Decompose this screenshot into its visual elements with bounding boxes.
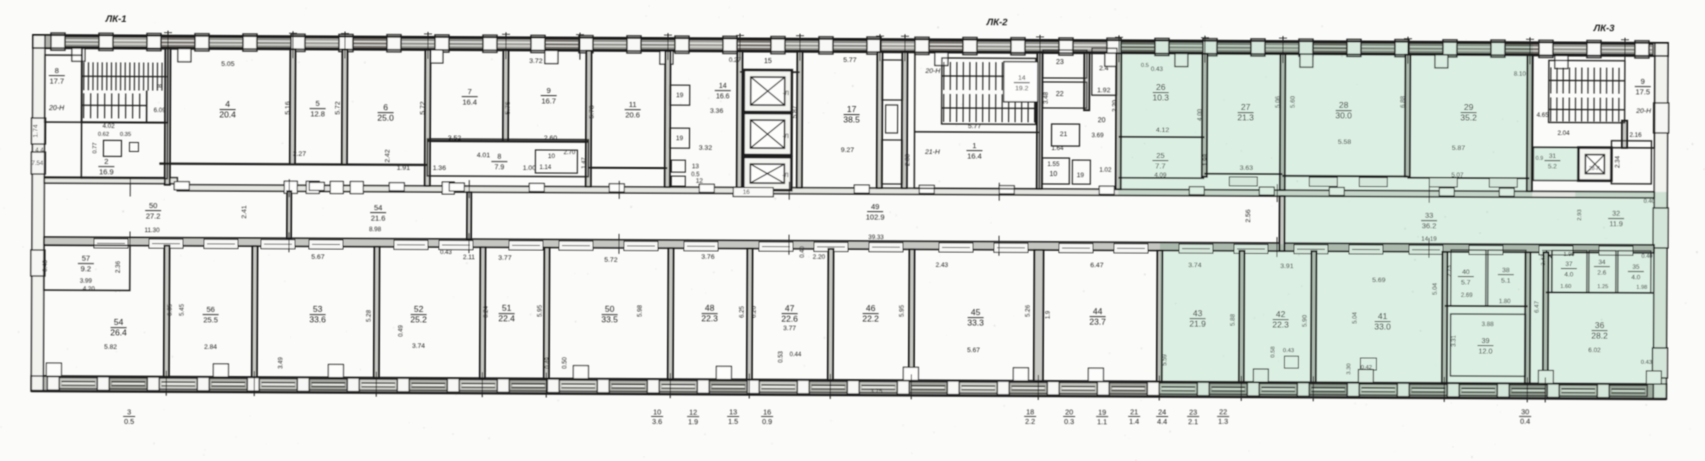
svg-text:9.27: 9.27 bbox=[841, 147, 854, 154]
svg-text:33.5: 33.5 bbox=[601, 314, 618, 324]
svg-text:5.67: 5.67 bbox=[311, 254, 324, 261]
svg-text:20-Н: 20-Н bbox=[48, 105, 65, 112]
svg-text:5.67: 5.67 bbox=[967, 347, 980, 354]
svg-text:27.2: 27.2 bbox=[146, 211, 161, 220]
svg-text:23: 23 bbox=[1189, 407, 1197, 416]
svg-text:4.4: 4.4 bbox=[1157, 417, 1167, 426]
svg-text:7.9: 7.9 bbox=[494, 164, 504, 171]
svg-text:13: 13 bbox=[729, 408, 737, 417]
svg-text:5.95: 5.95 bbox=[537, 304, 544, 317]
svg-text:5.76: 5.76 bbox=[505, 101, 512, 114]
svg-text:3.69: 3.69 bbox=[1091, 132, 1104, 139]
svg-text:0.53: 0.53 bbox=[778, 350, 784, 362]
svg-text:9: 9 bbox=[1641, 77, 1645, 86]
svg-text:7.54: 7.54 bbox=[32, 161, 44, 167]
svg-text:14: 14 bbox=[1018, 75, 1026, 82]
svg-text:1.74: 1.74 bbox=[33, 124, 40, 137]
svg-text:0.3: 0.3 bbox=[1064, 417, 1074, 426]
svg-text:5.05: 5.05 bbox=[221, 61, 234, 68]
svg-text:3.32: 3.32 bbox=[699, 145, 712, 152]
svg-text:25.2: 25.2 bbox=[410, 314, 427, 324]
svg-text:16.4: 16.4 bbox=[462, 97, 477, 106]
svg-text:5.77: 5.77 bbox=[968, 123, 981, 130]
svg-text:33.3: 33.3 bbox=[967, 317, 984, 327]
svg-text:10: 10 bbox=[653, 407, 661, 416]
svg-text:3.6: 3.6 bbox=[652, 417, 662, 426]
svg-text:25.0: 25.0 bbox=[377, 112, 394, 122]
svg-text:47: 47 bbox=[785, 303, 795, 313]
svg-text:2.11: 2.11 bbox=[463, 254, 475, 261]
svg-text:0.49: 0.49 bbox=[399, 324, 405, 336]
svg-text:51: 51 bbox=[502, 303, 512, 313]
svg-text:4.20: 4.20 bbox=[83, 286, 96, 293]
svg-text:16.6: 16.6 bbox=[716, 93, 730, 100]
svg-text:0.77: 0.77 bbox=[92, 143, 98, 154]
svg-text:3.74: 3.74 bbox=[412, 343, 425, 350]
svg-text:5.82: 5.82 bbox=[104, 344, 117, 351]
svg-text:5.87: 5.87 bbox=[792, 105, 799, 118]
svg-text:5.45: 5.45 bbox=[179, 303, 186, 316]
svg-text:4.01: 4.01 bbox=[477, 152, 490, 159]
svg-text:50: 50 bbox=[149, 201, 157, 210]
svg-text:21: 21 bbox=[1060, 131, 1068, 138]
svg-text:4: 4 bbox=[225, 99, 230, 109]
svg-text:25.5: 25.5 bbox=[203, 315, 218, 324]
svg-text:44: 44 bbox=[1093, 306, 1103, 316]
svg-text:4.4: 4.4 bbox=[35, 148, 44, 154]
svg-text:56: 56 bbox=[206, 305, 214, 314]
svg-text:21: 21 bbox=[1130, 407, 1138, 416]
svg-text:1.9: 1.9 bbox=[688, 417, 698, 426]
svg-text:2.70: 2.70 bbox=[564, 150, 576, 156]
svg-text:2: 2 bbox=[104, 157, 108, 166]
svg-text:2.34: 2.34 bbox=[1614, 155, 1621, 168]
svg-text:1.91: 1.91 bbox=[397, 165, 410, 172]
svg-text:24: 24 bbox=[1158, 408, 1166, 417]
svg-text:54: 54 bbox=[114, 317, 124, 327]
svg-text:2.20: 2.20 bbox=[1112, 99, 1119, 112]
svg-text:28-Л: 28-Л bbox=[1589, 166, 1600, 172]
svg-text:2.04: 2.04 bbox=[1557, 130, 1570, 137]
svg-text:23: 23 bbox=[1056, 59, 1064, 66]
svg-text:6.25: 6.25 bbox=[739, 305, 746, 318]
svg-text:2.93: 2.93 bbox=[1577, 209, 1583, 220]
svg-text:20.6: 20.6 bbox=[625, 110, 640, 119]
svg-text:11: 11 bbox=[629, 100, 637, 109]
svg-text:12: 12 bbox=[696, 178, 704, 185]
svg-text:1.9: 1.9 bbox=[1046, 310, 1052, 319]
svg-text:1.5: 1.5 bbox=[728, 417, 738, 426]
svg-text:0.43: 0.43 bbox=[440, 250, 452, 256]
svg-text:0.49: 0.49 bbox=[545, 356, 551, 368]
svg-text:3.77: 3.77 bbox=[498, 255, 511, 262]
svg-text:8: 8 bbox=[55, 66, 59, 75]
svg-text:8.98: 8.98 bbox=[369, 226, 382, 233]
svg-text:16.4: 16.4 bbox=[967, 151, 982, 160]
svg-text:3.77: 3.77 bbox=[783, 325, 796, 332]
svg-text:50: 50 bbox=[605, 304, 615, 314]
svg-text:0.62: 0.62 bbox=[98, 132, 109, 138]
svg-text:6.05: 6.05 bbox=[167, 303, 174, 316]
svg-text:1.3: 1.3 bbox=[1218, 417, 1228, 426]
svg-text:2.41: 2.41 bbox=[241, 205, 248, 218]
svg-text:19: 19 bbox=[676, 135, 684, 142]
svg-text:11.9: 11.9 bbox=[1609, 219, 1623, 228]
svg-text:20-Н: 20-Н bbox=[1635, 108, 1651, 115]
svg-text:1.92: 1.92 bbox=[1097, 87, 1110, 94]
svg-text:1.1: 1.1 bbox=[1097, 417, 1107, 426]
svg-text:5.95: 5.95 bbox=[899, 304, 906, 317]
svg-text:12: 12 bbox=[689, 408, 697, 417]
svg-text:2.56: 2.56 bbox=[1245, 209, 1252, 222]
svg-text:22.2: 22.2 bbox=[862, 313, 879, 323]
svg-text:17: 17 bbox=[847, 104, 857, 114]
svg-text:7: 7 bbox=[468, 87, 472, 96]
svg-text:5.72: 5.72 bbox=[604, 257, 617, 264]
svg-text:13: 13 bbox=[692, 163, 700, 170]
svg-text:2.2: 2.2 bbox=[1025, 417, 1035, 426]
svg-text:5.28: 5.28 bbox=[366, 309, 373, 322]
svg-text:0.44: 0.44 bbox=[790, 352, 802, 358]
svg-text:10: 10 bbox=[1049, 171, 1057, 178]
svg-text:1: 1 bbox=[972, 141, 976, 150]
svg-text:0.35: 0.35 bbox=[120, 132, 131, 138]
svg-text:5.26: 5.26 bbox=[1025, 304, 1032, 317]
svg-text:ЛК-2: ЛК-2 bbox=[986, 17, 1009, 28]
svg-text:0.50: 0.50 bbox=[562, 356, 568, 368]
svg-text:17.5: 17.5 bbox=[1635, 87, 1650, 96]
svg-text:2.60: 2.60 bbox=[544, 135, 557, 142]
svg-text:6.24: 6.24 bbox=[483, 305, 490, 318]
svg-text:6.09: 6.09 bbox=[154, 107, 167, 114]
svg-text:20: 20 bbox=[1098, 117, 1106, 124]
svg-text:1.00: 1.00 bbox=[523, 165, 536, 172]
svg-text:2.88: 2.88 bbox=[904, 153, 911, 166]
svg-text:5.98: 5.98 bbox=[637, 304, 644, 317]
svg-text:22.4: 22.4 bbox=[498, 313, 515, 323]
svg-text:16.7: 16.7 bbox=[541, 96, 556, 105]
svg-text:-Л: -Л bbox=[782, 133, 788, 140]
svg-text:0.40: 0.40 bbox=[1644, 199, 1655, 205]
svg-text:2.36: 2.36 bbox=[115, 260, 122, 273]
svg-text:102.9: 102.9 bbox=[866, 212, 885, 221]
svg-text:22.6: 22.6 bbox=[781, 313, 798, 323]
svg-text:16.9: 16.9 bbox=[99, 167, 114, 176]
svg-text:46: 46 bbox=[866, 303, 876, 313]
svg-text:0.9: 0.9 bbox=[762, 417, 772, 426]
svg-text:5.77: 5.77 bbox=[843, 57, 856, 64]
svg-text:1.55: 1.55 bbox=[1047, 161, 1060, 168]
svg-text:8: 8 bbox=[157, 84, 164, 88]
svg-text:2.20: 2.20 bbox=[813, 254, 826, 261]
svg-text:19.2: 19.2 bbox=[1015, 86, 1028, 93]
svg-text:6.47: 6.47 bbox=[1090, 262, 1103, 269]
svg-text:57: 57 bbox=[82, 254, 90, 263]
svg-text:10: 10 bbox=[548, 153, 556, 160]
svg-text:2.43: 2.43 bbox=[936, 262, 949, 269]
svg-text:21.6: 21.6 bbox=[371, 213, 386, 222]
svg-text:26.4: 26.4 bbox=[110, 327, 127, 337]
svg-text:6: 6 bbox=[383, 102, 388, 112]
svg-text:12.8: 12.8 bbox=[310, 109, 325, 118]
svg-text:0.48: 0.48 bbox=[43, 259, 49, 271]
svg-text:30: 30 bbox=[1521, 407, 1529, 416]
svg-text:3.52: 3.52 bbox=[448, 135, 461, 142]
svg-text:54: 54 bbox=[374, 203, 382, 212]
svg-text:2.27: 2.27 bbox=[293, 151, 306, 158]
svg-text:32: 32 bbox=[1612, 209, 1620, 218]
svg-text:3: 3 bbox=[127, 407, 131, 416]
svg-text:49: 49 bbox=[871, 202, 879, 211]
svg-text:ЛК-3: ЛК-3 bbox=[1593, 23, 1616, 34]
svg-text:17.7: 17.7 bbox=[49, 76, 64, 85]
svg-text:53: 53 bbox=[313, 304, 323, 314]
svg-text:6.20: 6.20 bbox=[751, 305, 758, 318]
svg-text:3.49: 3.49 bbox=[278, 356, 284, 368]
svg-text:3.72: 3.72 bbox=[529, 58, 542, 65]
svg-text:22: 22 bbox=[1219, 408, 1227, 417]
svg-text:4.65: 4.65 bbox=[1537, 112, 1550, 119]
svg-text:2.84: 2.84 bbox=[204, 344, 217, 351]
svg-text:4.02: 4.02 bbox=[103, 123, 116, 130]
svg-text:19: 19 bbox=[1077, 172, 1085, 179]
svg-text:16: 16 bbox=[763, 407, 771, 416]
svg-text:39.33: 39.33 bbox=[868, 234, 884, 241]
svg-text:8: 8 bbox=[497, 154, 501, 161]
svg-text:2.1: 2.1 bbox=[1188, 417, 1198, 426]
svg-text:3.48: 3.48 bbox=[1043, 91, 1050, 104]
svg-text:2.16: 2.16 bbox=[1629, 132, 1642, 139]
svg-text:5.72: 5.72 bbox=[420, 101, 427, 114]
svg-text:0.5: 0.5 bbox=[124, 417, 134, 426]
svg-text:0.4: 0.4 bbox=[1520, 417, 1530, 426]
svg-text:9: 9 bbox=[547, 86, 551, 95]
svg-text:ЛК-1: ЛК-1 bbox=[105, 14, 127, 25]
svg-text:52: 52 bbox=[414, 304, 424, 314]
svg-text:20: 20 bbox=[1065, 407, 1073, 416]
svg-text:-Л: -Л bbox=[782, 172, 788, 179]
svg-text:38.5: 38.5 bbox=[843, 114, 860, 124]
svg-text:0.40: 0.40 bbox=[800, 245, 806, 257]
svg-text:9.2: 9.2 bbox=[81, 264, 91, 273]
svg-text:48: 48 bbox=[705, 303, 715, 313]
svg-text:2.42: 2.42 bbox=[384, 149, 391, 162]
svg-text:21-Н: 21-Н bbox=[924, 149, 940, 156]
svg-text:20.4: 20.4 bbox=[219, 109, 236, 119]
svg-text:3.36: 3.36 bbox=[710, 108, 723, 115]
svg-text:1.14: 1.14 bbox=[539, 165, 551, 171]
svg-text:23.7: 23.7 bbox=[1089, 316, 1106, 326]
svg-text:3.99: 3.99 bbox=[80, 278, 93, 285]
svg-text:14: 14 bbox=[719, 83, 727, 90]
svg-text:33.6: 33.6 bbox=[309, 314, 326, 324]
svg-text:3.76: 3.76 bbox=[701, 254, 714, 261]
svg-text:20-Н: 20-Н bbox=[924, 68, 940, 75]
svg-text:16: 16 bbox=[743, 189, 750, 196]
svg-text:22.3: 22.3 bbox=[701, 313, 718, 323]
svg-text:2.4: 2.4 bbox=[1099, 65, 1109, 72]
svg-text:19: 19 bbox=[676, 92, 684, 99]
svg-text:1.4: 1.4 bbox=[1129, 417, 1139, 426]
svg-text:5: 5 bbox=[316, 99, 320, 108]
svg-text:22: 22 bbox=[1056, 91, 1064, 98]
svg-text:1.36: 1.36 bbox=[433, 165, 446, 172]
svg-text:5.72: 5.72 bbox=[335, 101, 342, 114]
svg-text:11.30: 11.30 bbox=[145, 227, 161, 234]
svg-text:5.16: 5.16 bbox=[285, 101, 292, 114]
svg-text:1.64: 1.64 bbox=[1051, 145, 1064, 152]
svg-text:3.75: 3.75 bbox=[870, 388, 883, 395]
svg-text:5.78: 5.78 bbox=[589, 105, 596, 118]
svg-text:-Л: -Л bbox=[782, 90, 788, 97]
svg-text:1.02: 1.02 bbox=[1099, 167, 1112, 174]
svg-text:45: 45 bbox=[971, 307, 981, 317]
svg-text:19: 19 bbox=[1098, 408, 1106, 417]
svg-text:15: 15 bbox=[764, 58, 772, 65]
svg-text:18: 18 bbox=[1026, 407, 1034, 416]
svg-text:1.47: 1.47 bbox=[581, 157, 587, 168]
